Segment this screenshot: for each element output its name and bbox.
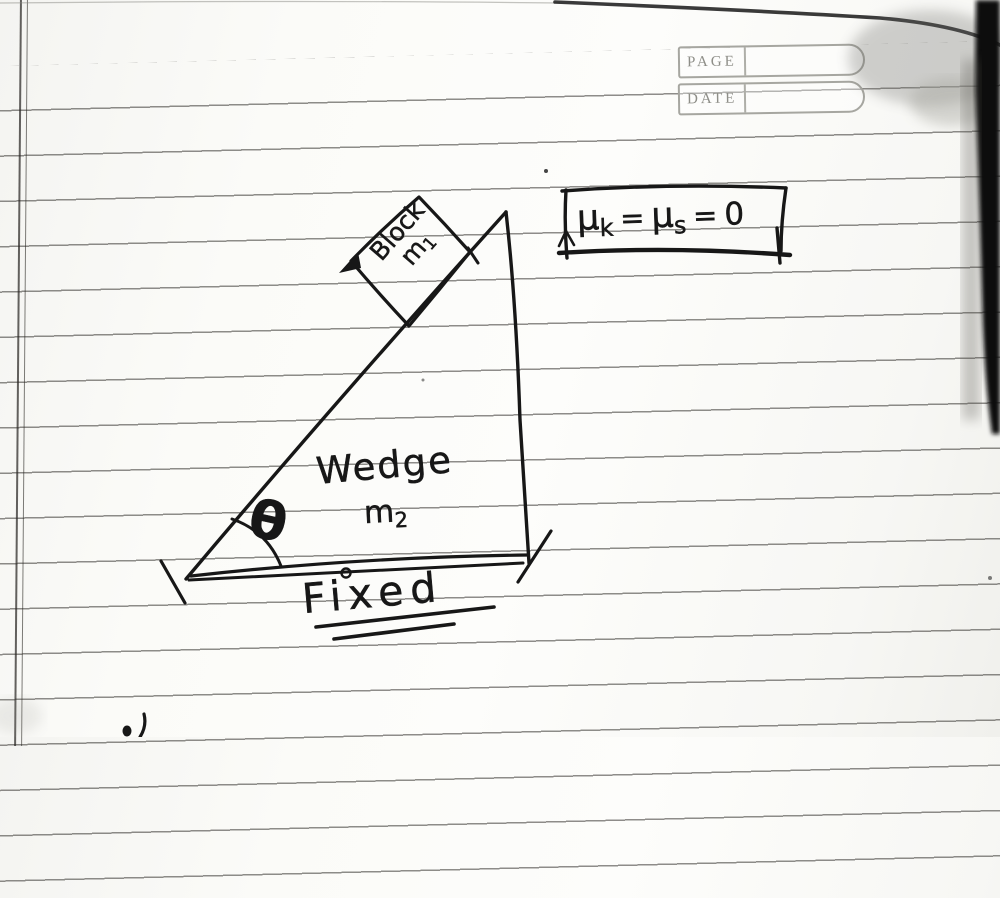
zero-value: 0 (724, 196, 745, 233)
page-top-hairline (0, 2, 560, 4)
scan-edge-soft-shadow (962, 60, 980, 420)
ink-speck (422, 379, 425, 382)
wedge-mass-symbol: m (363, 494, 395, 532)
friction-equation: μk=μs=0 (576, 193, 744, 239)
note-box-bottom (559, 250, 790, 255)
note-box-right (781, 188, 786, 251)
fixed-underline-2 (334, 624, 454, 639)
static-subscript: s (673, 211, 686, 239)
scan-artifacts (0, 0, 1000, 734)
ink-speck (544, 169, 548, 173)
equals-sign: = (620, 201, 645, 236)
wedge-right-side-line (506, 212, 529, 563)
note-box-left (565, 190, 567, 258)
note-box-top (562, 186, 786, 191)
equals-sign: = (692, 198, 717, 233)
ground-tick-left (161, 561, 185, 603)
kinetic-subscript: k (599, 213, 614, 241)
wedge-mass-subscript: 2 (394, 507, 409, 533)
mu-static-symbol: μ (651, 196, 675, 237)
bottom-left-speckle (0, 698, 42, 734)
notebook-page-scan: { "header": { "page_label": "PAGE", "dat… (0, 0, 1000, 737)
fragment-stroke (140, 714, 145, 737)
fragment-dot (123, 726, 132, 737)
ink-speck (988, 576, 992, 580)
mu-kinetic-symbol: μ (576, 198, 600, 239)
partial-writing-fragment (123, 714, 145, 737)
wedge-mass-label: m2 (363, 493, 408, 531)
note-box-right-tick (777, 228, 780, 263)
physics-sketch (0, 0, 1000, 737)
